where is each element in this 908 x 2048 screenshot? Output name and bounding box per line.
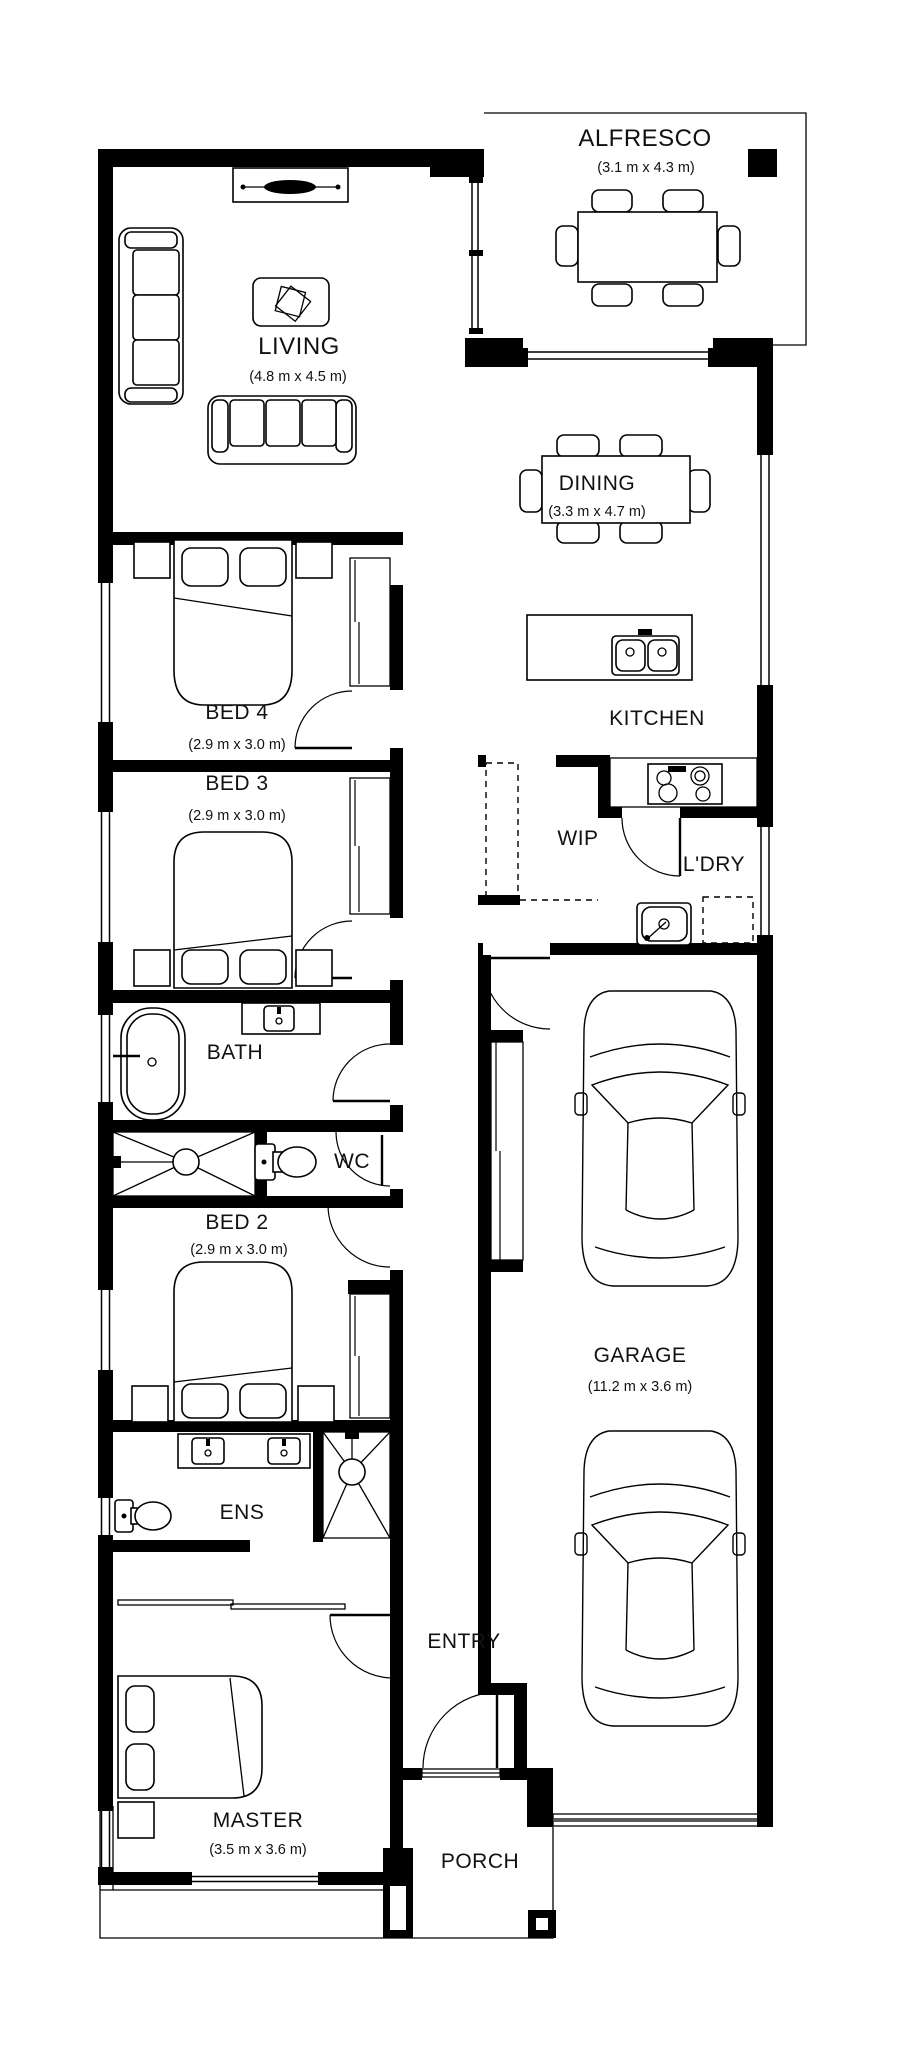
coffee-table — [253, 278, 329, 326]
hall-cupboard — [491, 1042, 523, 1260]
ens-shower — [323, 1432, 390, 1538]
label-bed3: BED 3 — [205, 772, 268, 795]
kitchen-island — [527, 615, 692, 680]
dims-bed3: (2.9 m x 3.0 m) — [188, 808, 286, 824]
bed4-furniture — [134, 540, 332, 705]
dims-living: (4.8 m x 4.5 m) — [249, 369, 347, 385]
label-porch: PORCH — [441, 1850, 519, 1873]
garage-internal-door — [483, 958, 550, 1029]
window-dining — [757, 450, 773, 690]
bath-door — [333, 1044, 390, 1101]
window-bed4 — [98, 578, 113, 727]
window-bed2 — [98, 1285, 113, 1375]
label-kitchen: KITCHEN — [609, 707, 705, 730]
bed4-door — [295, 691, 352, 748]
walls — [98, 149, 777, 1885]
dims-alfresco: (3.1 m x 4.3 m) — [597, 160, 695, 176]
porch-pier — [383, 1848, 413, 1938]
porch-post — [528, 1910, 556, 1938]
bathtub — [113, 1008, 185, 1120]
label-bed4: BED 4 — [205, 701, 268, 724]
label-wc: WC — [334, 1150, 370, 1173]
tv-unit — [233, 168, 348, 202]
ens-toilet — [115, 1500, 171, 1532]
label-alfresco: ALFRESCO — [578, 125, 711, 152]
alfresco-column — [748, 149, 777, 177]
window-alfresco — [523, 348, 713, 367]
bed2-robe — [350, 1294, 390, 1418]
window-bed3 — [98, 807, 113, 947]
dims-master: (3.5 m x 3.6 m) — [209, 1842, 307, 1858]
bath-shower — [113, 1132, 255, 1196]
dims-dining: (3.3 m x 4.7 m) — [548, 504, 646, 520]
washing-machine-space — [703, 897, 753, 943]
robe-sliding-doors — [118, 1600, 345, 1609]
ens-vanity — [178, 1434, 310, 1468]
label-entry: ENTRY — [427, 1630, 500, 1653]
front-door — [422, 1692, 500, 1777]
garage-door — [553, 1814, 758, 1826]
kitchen-bench-cooktop — [610, 758, 757, 807]
laundry-trough — [637, 903, 691, 945]
label-wip: WIP — [557, 827, 598, 850]
label-living: LIVING — [258, 333, 340, 360]
floor-plan-drawing: ALFRESCO (3.1 m x 4.3 m) LIVING (4.8 m x… — [0, 0, 908, 2048]
label-garage: GARAGE — [594, 1344, 687, 1367]
storage — [350, 558, 753, 1418]
window-living-east — [469, 177, 483, 334]
label-master: MASTER — [213, 1809, 304, 1832]
window-ldry — [757, 822, 773, 940]
dims-garage: (11.2 m x 3.6 m) — [588, 1379, 692, 1395]
car-1 — [575, 991, 745, 1286]
wc-toilet — [255, 1144, 316, 1180]
window-ens — [98, 1493, 113, 1540]
label-ldry: L'DRY — [683, 853, 745, 876]
bath-vanity — [242, 1003, 320, 1034]
sofa-south — [208, 396, 356, 464]
floor-plan: ALFRESCO (3.1 m x 4.3 m) LIVING (4.8 m x… — [0, 0, 908, 2048]
window-master-south — [187, 1872, 323, 1885]
master-door — [330, 1615, 393, 1678]
label-bed2: BED 2 — [205, 1211, 268, 1234]
sink-tap — [638, 629, 652, 635]
windows — [98, 149, 773, 1885]
bed2-furniture — [132, 1262, 334, 1422]
bed4-robe — [350, 558, 390, 686]
label-bath: BATH — [207, 1041, 263, 1064]
alfresco-dining-set — [556, 190, 740, 306]
label-ens: ENS — [220, 1501, 265, 1524]
sofa-west — [119, 228, 183, 404]
bed3-furniture — [134, 832, 332, 988]
bed2-door — [328, 1205, 390, 1267]
window-bath — [98, 1010, 113, 1107]
laundry-door — [622, 818, 680, 876]
label-dining: DINING — [559, 472, 636, 495]
dims-bed4: (2.9 m x 3.0 m) — [188, 737, 286, 753]
bed3-robe — [350, 778, 390, 914]
car-2 — [575, 1431, 745, 1726]
dims-bed2: (2.9 m x 3.0 m) — [190, 1242, 288, 1258]
